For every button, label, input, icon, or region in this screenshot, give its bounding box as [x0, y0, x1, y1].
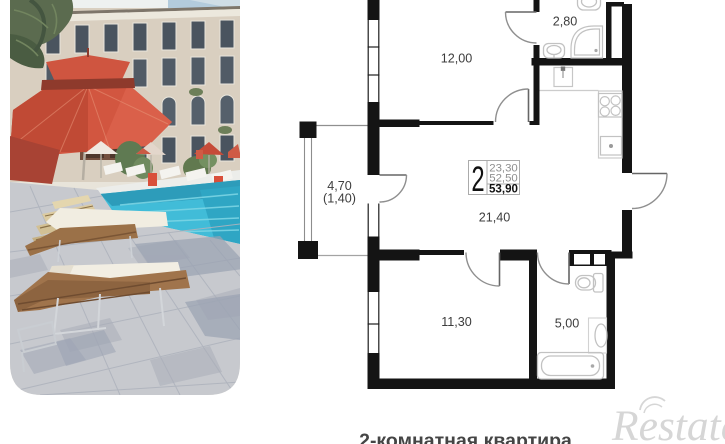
svg-text:2: 2	[471, 161, 484, 200]
svg-text:(1,40): (1,40)	[323, 192, 356, 206]
svg-text:53,90: 53,90	[489, 183, 518, 196]
svg-text:Restate: Restate	[611, 402, 725, 444]
svg-text:12,00: 12,00	[441, 52, 473, 66]
svg-text:2,80: 2,80	[553, 15, 578, 29]
svg-text:11,30: 11,30	[441, 315, 472, 329]
svg-text:2-комнатная квартира: 2-комнатная квартира	[359, 430, 572, 444]
svg-text:21,40: 21,40	[479, 211, 511, 225]
svg-text:5,00: 5,00	[555, 317, 580, 331]
